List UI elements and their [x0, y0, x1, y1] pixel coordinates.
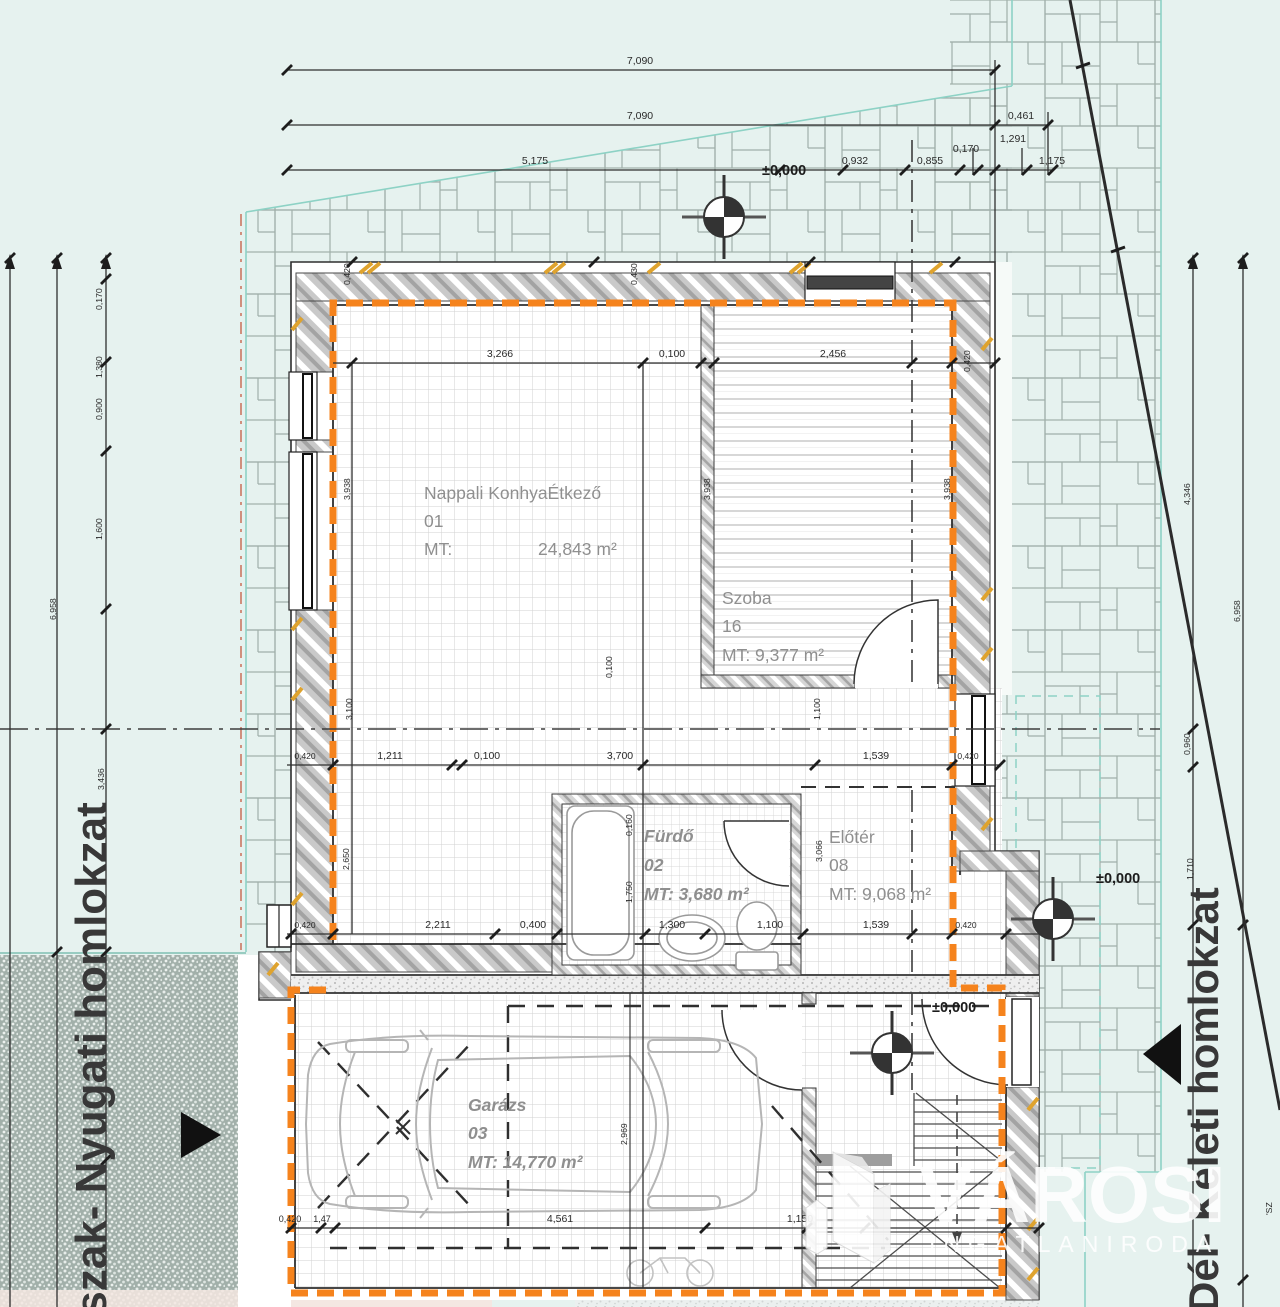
- svg-text:0,420: 0,420: [294, 751, 316, 761]
- svg-text:3,266: 3,266: [487, 348, 513, 360]
- svg-text:VÁROSI: VÁROSI: [919, 1150, 1226, 1239]
- svg-text:Garázs: Garázs: [468, 1095, 527, 1115]
- svg-text:Nappali KonhyaÉtkező: Nappali KonhyaÉtkező: [424, 483, 601, 503]
- svg-text:0,420: 0,420: [294, 920, 316, 930]
- svg-text:1,380: 1,380: [94, 356, 104, 378]
- svg-text:1,291: 1,291: [1000, 133, 1026, 145]
- svg-text:MT:: MT:: [424, 539, 452, 559]
- svg-text:3,436: 3,436: [96, 768, 106, 790]
- svg-text:0,420: 0,420: [342, 263, 352, 285]
- svg-text:3,700: 3,700: [607, 750, 633, 762]
- svg-text:1,100: 1,100: [812, 698, 822, 720]
- svg-text:3,938: 3,938: [342, 478, 352, 500]
- svg-text:0,400: 0,400: [520, 919, 546, 931]
- svg-text:0,900: 0,900: [94, 398, 104, 420]
- svg-text:1,710: 1,710: [1185, 858, 1195, 880]
- svg-text:0,420: 0,420: [962, 350, 972, 372]
- svg-text:INGATLANIRODA: INGATLANIRODA: [929, 1231, 1219, 1257]
- svg-text:MT: 9,377 m²: MT: 9,377 m²: [722, 645, 824, 665]
- svg-text:1,47: 1,47: [313, 1214, 331, 1224]
- svg-text:0,420: 0,420: [957, 751, 979, 761]
- svg-text:±0,000: ±0,000: [932, 1000, 976, 1016]
- svg-text:0,855: 0,855: [917, 155, 943, 167]
- svg-text:0,461: 0,461: [1008, 110, 1034, 122]
- svg-text:MT: 3,680 m²: MT: 3,680 m²: [644, 884, 750, 904]
- svg-text:0,170: 0,170: [94, 288, 104, 310]
- svg-text:Fürdő: Fürdő: [644, 826, 695, 846]
- svg-text:2,969: 2,969: [619, 1123, 629, 1145]
- svg-text:1,539: 1,539: [863, 919, 889, 931]
- svg-text:±0,000: ±0,000: [762, 163, 806, 179]
- svg-text:Szoba: Szoba: [722, 588, 772, 608]
- svg-text:0,100: 0,100: [604, 656, 614, 678]
- svg-text:3,066: 3,066: [814, 840, 824, 862]
- svg-text:0,100: 0,100: [659, 348, 685, 360]
- svg-text:7,090: 7,090: [627, 55, 653, 67]
- svg-text:2,211: 2,211: [425, 919, 451, 931]
- svg-text:16: 16: [722, 616, 741, 636]
- svg-text:1,750: 1,750: [624, 881, 634, 903]
- svg-text:4,346: 4,346: [1182, 483, 1192, 505]
- svg-text:0,932: 0,932: [842, 155, 868, 167]
- svg-text:3,938: 3,938: [942, 478, 952, 500]
- svg-text:01: 01: [424, 511, 443, 531]
- svg-text:0,100: 0,100: [474, 750, 500, 762]
- svg-text:0,960: 0,960: [1182, 733, 1192, 755]
- svg-text:1,600: 1,600: [94, 518, 104, 540]
- svg-text:7,090: 7,090: [627, 110, 653, 122]
- svg-text:3,100: 3,100: [344, 698, 354, 720]
- svg-text:0,420: 0,420: [279, 1214, 302, 1224]
- svg-text:0,160: 0,160: [624, 814, 634, 836]
- svg-text:6,958: 6,958: [1232, 600, 1242, 622]
- svg-text:2,456: 2,456: [820, 348, 846, 360]
- svg-text:3,938: 3,938: [702, 478, 712, 500]
- svg-text:1,175: 1,175: [1039, 155, 1065, 167]
- svg-text:5,175: 5,175: [522, 155, 548, 167]
- svg-text:4,561: 4,561: [547, 1213, 573, 1225]
- svg-text:±0,000: ±0,000: [1096, 871, 1140, 887]
- svg-text:0,170: 0,170: [953, 143, 979, 155]
- svg-text:1,211: 1,211: [377, 750, 403, 762]
- svg-text:2,650: 2,650: [341, 848, 351, 870]
- svg-text:Észak- Nyugati homlokzat: Észak- Nyugati homlokzat: [66, 802, 116, 1307]
- svg-text:03: 03: [468, 1123, 488, 1143]
- svg-text:02: 02: [644, 855, 664, 875]
- svg-text:'SZ: 'SZ: [1264, 1202, 1274, 1215]
- svg-text:1,100: 1,100: [757, 919, 783, 931]
- svg-text:1,539: 1,539: [863, 750, 889, 762]
- svg-text:08: 08: [829, 855, 848, 875]
- svg-text:0,420: 0,420: [955, 920, 977, 930]
- svg-text:Előtér: Előtér: [829, 827, 875, 847]
- svg-text:1,300: 1,300: [659, 919, 685, 931]
- svg-text:MT: 14,770 m²: MT: 14,770 m²: [468, 1152, 584, 1172]
- svg-text:24,843 m²: 24,843 m²: [538, 539, 617, 559]
- svg-text:6,958: 6,958: [48, 598, 58, 620]
- svg-text:0,430: 0,430: [629, 263, 639, 285]
- svg-text:MT: 9,068 m²: MT: 9,068 m²: [829, 884, 931, 904]
